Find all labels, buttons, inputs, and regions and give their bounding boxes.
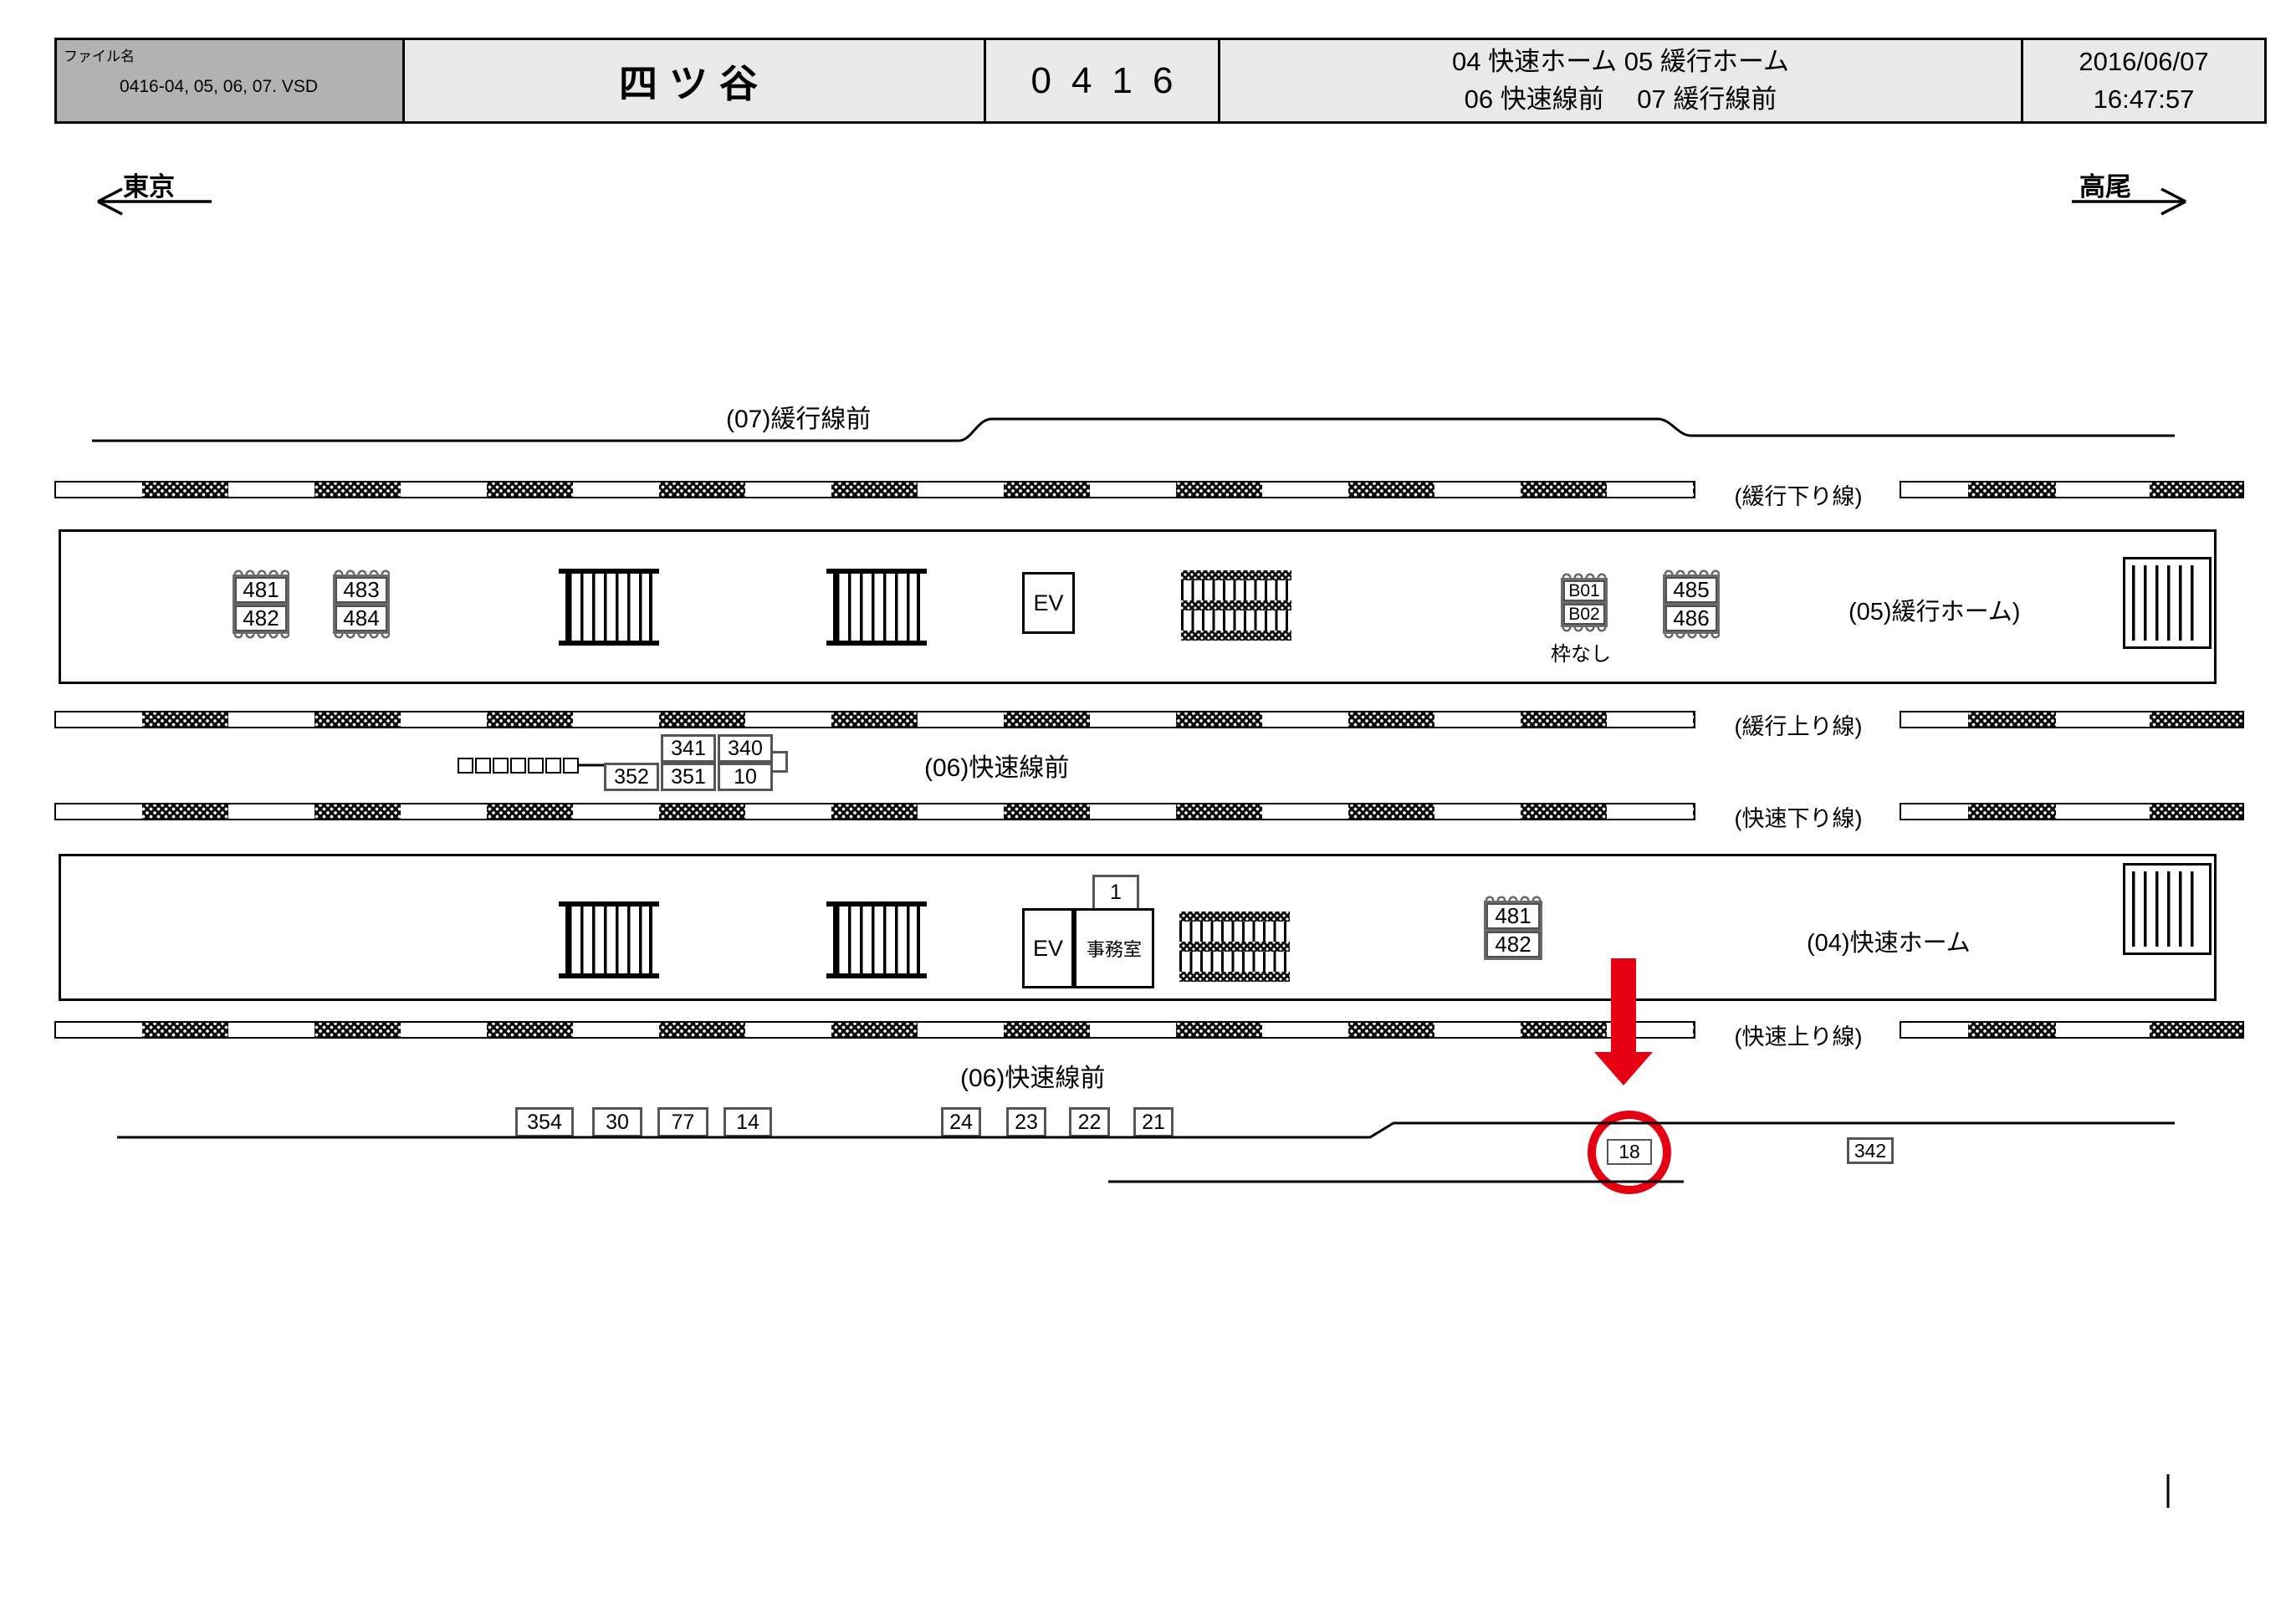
walkway-line-07 [92, 419, 2175, 441]
ad-box-23: 23 [1006, 1107, 1046, 1137]
stairs-rail [559, 641, 659, 646]
ad-box-340: 340 [718, 734, 773, 763]
header-table: ファイル名 0416-04, 05, 06, 07. VSD 四ツ谷 0416 … [54, 38, 2267, 124]
no-frame-note: 枠なし [1551, 637, 1611, 666]
section-label-06-mid: (06)快速線前 [924, 747, 1069, 784]
scallop-top [333, 565, 390, 575]
small-square [510, 758, 526, 774]
bracket-icon [773, 751, 788, 773]
ad-sign-485-486: 485 486 [1663, 565, 1720, 643]
section-label-07-top: (07)緩行線前 [726, 398, 871, 435]
bench-steps [1181, 580, 1291, 600]
stairs-steps [2132, 565, 2202, 641]
elevator-box-upper: EV [1022, 572, 1075, 634]
direction-right-label: 高尾 [2079, 166, 2131, 203]
track-band-kanko-up-right [1900, 711, 2244, 728]
ad-box-352: 352 [604, 763, 659, 791]
track-label-kaisoku-up: (快速上り線) [1706, 1019, 1890, 1051]
ad-sign-b01-b02: B01 B02 [1561, 569, 1608, 636]
ad-box-77: 77 [657, 1107, 708, 1137]
bench-band [1179, 942, 1290, 952]
filename-value: 0416-04, 05, 06, 07. VSD [57, 65, 318, 97]
time-value: 16:47:57 [2094, 81, 2195, 118]
stairs-rail [826, 973, 927, 978]
track-band-kaisoku-up-left [54, 1021, 1695, 1039]
bench-band [1179, 972, 1290, 982]
station-name: 四ツ谷 [405, 40, 986, 121]
ad-box-10: 10 [718, 763, 773, 791]
scallop-top [1561, 569, 1608, 578]
bench-band [1181, 631, 1291, 641]
sign-body: 481 482 [1484, 901, 1542, 960]
ad-box-30: 30 [592, 1107, 642, 1137]
office-box: 事務室 [1074, 908, 1154, 988]
small-square [528, 758, 544, 774]
small-square [458, 758, 473, 774]
section-label-06-bottom: (06)快速線前 [960, 1057, 1105, 1094]
bench-steps [1181, 610, 1291, 631]
sign-plate: 485 [1665, 577, 1717, 603]
scallop-bottom [1663, 634, 1720, 643]
ad-box-22: 22 [1069, 1107, 1110, 1137]
header-datetime-cell: 2016/06/07 16:47:57 [2023, 40, 2264, 121]
sign-plate: 482 [1486, 932, 1540, 958]
track-band-kaisoku-down-right [1900, 803, 2244, 820]
header-legend-cell: 04 快速ホーム 05 緩行ホーム 06 快速線前 07 緩行線前 [1220, 40, 2023, 121]
small-square [545, 758, 561, 774]
platform-04-label: (04)快速ホーム [1807, 923, 1971, 958]
small-square [493, 758, 509, 774]
stairs-steps [2132, 871, 2202, 947]
bench-band [1181, 600, 1291, 610]
box-1: 1 [1092, 875, 1139, 911]
elevator-box-lower: EV [1022, 908, 1074, 988]
track-band-kaisoku-down-left [54, 803, 1695, 820]
sign-plate: 481 [235, 577, 287, 603]
stairs-rail [826, 641, 927, 646]
sign-plate: 483 [335, 577, 387, 603]
small-square [563, 758, 579, 774]
bench-steps [1179, 922, 1290, 942]
ad-sign-481-482-lower: 481 482 [1484, 891, 1542, 960]
sign-plate: 482 [235, 605, 287, 631]
ad-box-354: 354 [515, 1107, 574, 1137]
legend-line-1: 04 快速ホーム 05 緩行ホーム [1452, 43, 1789, 80]
stairs-icon [826, 901, 927, 978]
ad-sign-483-484: 483 484 [333, 565, 390, 643]
sign-plate: B01 [1563, 580, 1605, 601]
date-value: 2016/06/07 [2079, 43, 2208, 80]
track-label-kanko-up: (緩行上り線) [1706, 708, 1890, 741]
direction-left-label: 東京 [123, 166, 175, 203]
ad-box-341: 341 [661, 734, 716, 763]
stairs-icon [826, 569, 927, 646]
sign-body: 485 486 [1663, 575, 1720, 634]
track-band-kaisoku-up-right [1900, 1021, 2244, 1039]
sign-body: 481 482 [233, 575, 289, 634]
track-band-kanko-down-left [54, 481, 1695, 498]
bench-shelter-icon [1179, 912, 1290, 982]
track-label-kanko-down: (緩行下り線) [1706, 478, 1890, 511]
ad-box-14: 14 [724, 1107, 772, 1137]
scallop-top [233, 565, 289, 575]
ad-sign-481-482-upper: 481 482 [233, 565, 289, 643]
ad-box-24: 24 [941, 1107, 981, 1137]
stairs-steps [833, 906, 920, 973]
stairs-icon [2123, 557, 2212, 649]
header-filename-cell: ファイル名 0416-04, 05, 06, 07. VSD [57, 40, 405, 121]
station-diagram-page: ファイル名 0416-04, 05, 06, 07. VSD 四ツ谷 0416 … [0, 0, 2296, 1624]
platform-05-label: (05)緩行ホーム) [1849, 592, 2020, 627]
small-square [475, 758, 491, 774]
sign-plate: 484 [335, 605, 387, 631]
track-label-kaisoku-down: (快速下り線) [1706, 800, 1890, 833]
bench-steps [1179, 952, 1290, 972]
stairs-icon [559, 569, 659, 646]
scallop-top [1484, 891, 1542, 901]
stairs-icon [559, 901, 659, 978]
ad-box-21: 21 [1133, 1107, 1174, 1137]
stairs-steps [833, 574, 920, 641]
bench-shelter-icon [1181, 570, 1291, 641]
sign-plate: 481 [1486, 903, 1540, 929]
legend-line-2: 06 快速線前 07 緩行線前 [1465, 81, 1777, 118]
stairs-icon [2123, 863, 2212, 955]
bench-band [1181, 570, 1291, 580]
highlight-circle [1588, 1111, 1671, 1194]
highlight-arrow-shaft [1611, 958, 1636, 1054]
bench-band [1179, 912, 1290, 922]
scallop-top [1663, 565, 1720, 575]
filename-label: ファイル名 [57, 40, 135, 65]
sign-plate: B02 [1563, 604, 1605, 625]
stairs-steps [565, 574, 652, 641]
track-band-kanko-up-left [54, 711, 1695, 728]
scallop-bottom [1561, 627, 1608, 636]
stairs-steps [565, 906, 652, 973]
track-band-kanko-down-right [1900, 481, 2244, 498]
highlight-arrow-head [1594, 1052, 1653, 1085]
station-code: 0416 [986, 40, 1220, 121]
ad-box-342: 342 [1847, 1137, 1894, 1164]
sign-body: 483 484 [333, 575, 390, 634]
sign-plate: 486 [1665, 605, 1717, 631]
ad-box-351: 351 [661, 763, 716, 791]
sign-body: B01 B02 [1561, 578, 1608, 627]
stairs-rail [559, 973, 659, 978]
scallop-bottom [233, 634, 289, 643]
scallop-bottom [333, 634, 390, 643]
